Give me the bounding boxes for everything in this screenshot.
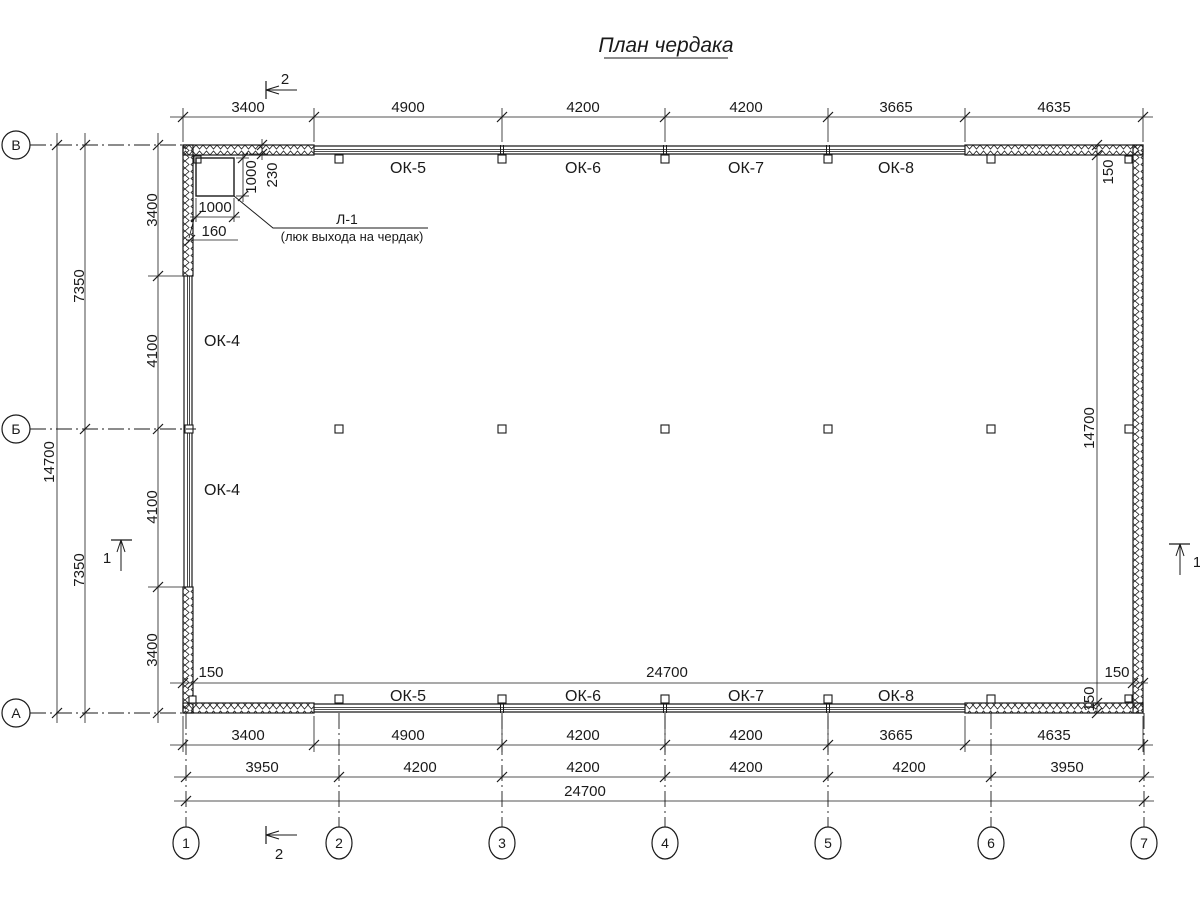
axis-col-label: 1 <box>182 835 190 851</box>
dim-label: 4200 <box>729 759 762 776</box>
dim-label: 1000 <box>243 160 260 193</box>
dim-label: 7350 <box>71 269 88 302</box>
dim-label: 3400 <box>231 99 264 116</box>
window-tag: ОК-8 <box>878 688 914 705</box>
dim-label: 160 <box>201 223 226 240</box>
corner-post-bottom-left <box>189 696 196 703</box>
section-marker-1-right: 1 <box>1169 544 1200 575</box>
wall-bottom-right <box>965 703 1143 713</box>
dim-label: 1000 <box>198 199 231 216</box>
window-tag: ОК-7 <box>728 160 764 177</box>
dim-label: 7350 <box>71 553 88 586</box>
corner-post-bottom-right <box>1125 695 1132 702</box>
section-marker-2-top: 2 <box>266 71 297 99</box>
dim-label-150: 150 <box>1081 686 1098 711</box>
axis-col-label: 2 <box>335 835 343 851</box>
dim-label: 3665 <box>879 99 912 116</box>
dim-label: 4200 <box>403 759 436 776</box>
wall-left-upper <box>183 145 193 276</box>
dim-label-150: 150 <box>198 664 223 681</box>
dim-label: 3665 <box>879 727 912 744</box>
wall-left-lower <box>183 587 193 713</box>
axis-col-label: 3 <box>498 835 506 851</box>
axis-col-label: 6 <box>987 835 995 851</box>
dim-label-150: 150 <box>1104 664 1129 681</box>
dim-label: 4200 <box>566 727 599 744</box>
dim-label: 4100 <box>144 334 161 367</box>
window-tag: ОК-5 <box>390 688 426 705</box>
dim-label-total: 14700 <box>41 441 58 483</box>
dimensions-inner: 150 14700 150 150 24700 150 <box>170 140 1148 718</box>
dim-label: 4635 <box>1037 99 1070 116</box>
window-tag: ОК-8 <box>878 160 914 177</box>
section-label: 1 <box>103 550 111 567</box>
dim-label: 4900 <box>391 99 424 116</box>
dim-label-total: 14700 <box>1081 407 1098 449</box>
dim-label: 4900 <box>391 727 424 744</box>
axis-grid-rows: В Б А <box>2 131 196 727</box>
dim-label-total: 24700 <box>646 664 688 681</box>
section-markers: 2 2 1 1 <box>103 71 1200 863</box>
dim-label: 4200 <box>729 99 762 116</box>
axis-row-label: В <box>11 137 20 153</box>
dim-label: 230 <box>264 162 281 187</box>
section-label: 1 <box>1193 554 1200 571</box>
dimensions-top: 3400 4900 4200 4200 3665 4635 <box>170 99 1153 142</box>
axis-col-label: 7 <box>1140 835 1148 851</box>
window-tag: ОК-4 <box>204 482 240 499</box>
section-marker-2-bottom: 2 <box>266 826 297 863</box>
wall-bottom-left <box>183 703 314 713</box>
axis-col-label: 4 <box>661 835 669 851</box>
dim-label: 4635 <box>1037 727 1070 744</box>
dim-label: 4200 <box>566 759 599 776</box>
dim-label: 4200 <box>566 99 599 116</box>
dim-label-150: 150 <box>1100 159 1117 184</box>
page-title: План чердака <box>598 34 733 57</box>
roof-hatch-opening <box>196 158 234 196</box>
hatch-description-label: (люк выхода на чердак) <box>281 229 424 244</box>
window-tag: ОК-4 <box>204 333 240 350</box>
section-label: 2 <box>275 846 283 863</box>
corner-post-top-left <box>194 156 201 163</box>
wall-right <box>1133 145 1143 713</box>
hatch-name-label: Л-1 <box>336 211 358 227</box>
axis-row-label: Б <box>11 421 20 437</box>
window-tag: ОК-5 <box>390 160 426 177</box>
window-tag: ОК-6 <box>565 688 601 705</box>
dim-label: 3400 <box>144 193 161 226</box>
dimensions-left: 3400 4100 4100 3400 7350 7350 14700 <box>41 133 183 723</box>
dimensions-bottom: 3400 4900 4200 4200 3665 4635 3950 4200 … <box>170 716 1154 806</box>
window-tag: ОК-6 <box>565 160 601 177</box>
wall-top-left <box>183 145 314 155</box>
dim-label: 3950 <box>1050 759 1083 776</box>
dim-label: 4200 <box>729 727 762 744</box>
corner-post-top-right <box>1125 156 1132 163</box>
dim-label: 3950 <box>245 759 278 776</box>
drawing-title: План чердака <box>598 34 733 58</box>
hatch-leader-line <box>234 196 428 228</box>
axis-col-label: 5 <box>824 835 832 851</box>
dim-label: 3400 <box>144 633 161 666</box>
dim-label-total: 24700 <box>564 783 606 800</box>
section-marker-1-left: 1 <box>103 540 132 571</box>
dim-label: 3400 <box>231 727 264 744</box>
attic-plan-drawing: План чердака <box>0 0 1200 900</box>
wall-top-right <box>965 145 1143 155</box>
dim-label: 4100 <box>144 490 161 523</box>
window-tag: ОК-7 <box>728 688 764 705</box>
dim-label: 4200 <box>892 759 925 776</box>
axis-row-label: А <box>11 705 21 721</box>
section-label: 2 <box>281 71 289 88</box>
